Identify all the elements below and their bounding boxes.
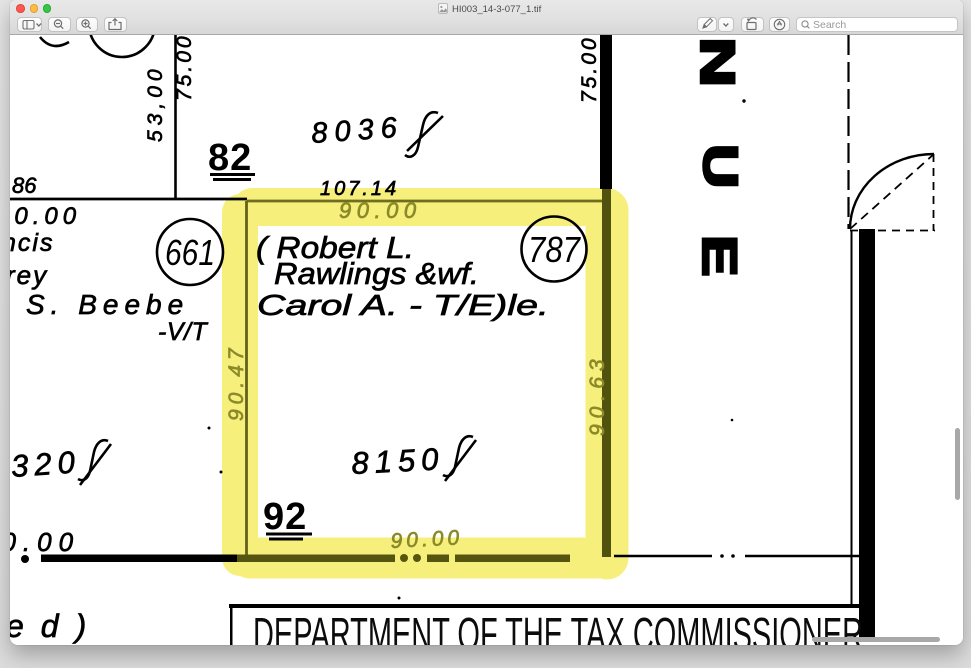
svg-text:92: 92: [263, 496, 307, 538]
svg-text:90.47: 90.47: [225, 343, 248, 421]
svg-text:ncis: ncis: [10, 229, 54, 257]
svg-text:8150: 8150: [351, 441, 446, 481]
svg-text:320: 320: [10, 444, 82, 484]
svg-text:90.00: 90.00: [339, 198, 422, 223]
svg-text:75.00: 75.00: [173, 35, 196, 101]
svg-text:90.00: 90.00: [10, 203, 81, 230]
svg-text:8036: 8036: [310, 112, 405, 150]
svg-text:53,00: 53,00: [144, 64, 167, 142]
svg-text:rey: rey: [10, 260, 48, 290]
svg-text:-V/T: -V/T: [158, 318, 208, 346]
svg-text:Rawlings &wf.: Rawlings &wf.: [274, 256, 479, 291]
svg-text:75.00: 75.00: [578, 35, 601, 103]
svg-text:Carol A. - T/E)le.: Carol A. - T/E)le.: [257, 290, 549, 322]
svg-text:DEPARTMENT OF THE TAX COMMISSI: DEPARTMENT OF THE TAX COMMISSIONER: [253, 608, 863, 645]
svg-text:787: 787: [528, 229, 582, 270]
svg-text:90.00: 90.00: [10, 527, 80, 557]
svg-text:Search: Search: [813, 19, 846, 31]
svg-text:661: 661: [165, 232, 215, 273]
svg-text:86: 86: [12, 173, 37, 198]
svg-text:90.63: 90.63: [586, 353, 609, 436]
svg-text:ed): ed): [10, 608, 103, 644]
svg-text:E: E: [693, 235, 746, 277]
svg-text:S. Beebe: S. Beebe: [26, 289, 189, 320]
svg-text:107.14: 107.14: [320, 178, 399, 200]
svg-text:90.00: 90.00: [390, 526, 464, 553]
svg-text:N: N: [691, 37, 745, 87]
svg-text:82: 82: [208, 137, 252, 179]
svg-text:U: U: [694, 144, 748, 188]
